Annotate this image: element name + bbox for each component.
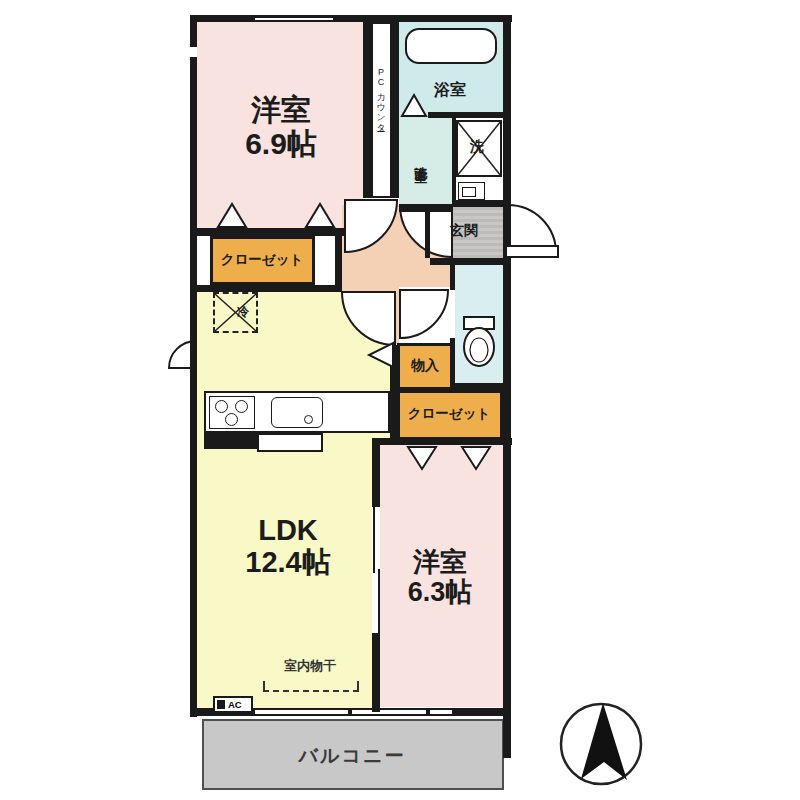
west1-size: 6.9帖 <box>245 127 317 161</box>
floor-plan: AC 洋室 6.9帖 LDK 12.4帖 洋室 6.3帖 浴室 洗面室 洗 <box>0 0 800 800</box>
ldk-name: LDK <box>245 514 330 546</box>
label-washer: 洗 <box>470 139 484 155</box>
kitchen-cabinet-dark <box>204 433 257 449</box>
wall-west1-bottom <box>190 228 345 236</box>
sink-drain <box>304 415 313 424</box>
wall-toilet-left-upper <box>450 265 455 290</box>
label-washroom: 洗面室 <box>413 157 428 160</box>
label-indoor-drying: 室内物干 <box>284 659 336 674</box>
label-pc-counter: PCカウンター <box>376 67 386 128</box>
wall-west2-left-lower <box>372 633 380 712</box>
bathtub-icon <box>405 28 497 64</box>
window-tick-2 <box>426 708 430 716</box>
ac-label: AC <box>228 699 242 710</box>
wall-entrance-top <box>452 200 503 207</box>
stove-burner <box>225 413 238 426</box>
west1-name: 洋室 <box>245 93 317 127</box>
shoe-cabinet-mark <box>462 187 476 197</box>
air-conditioner-box: AC <box>213 696 253 713</box>
stove-icon <box>209 396 255 429</box>
wall-washer-left <box>452 118 456 207</box>
room-washroom <box>399 118 452 212</box>
indoor-drying-bracket <box>263 681 359 692</box>
wall-ldk-right <box>390 345 397 445</box>
wall-hall-left <box>335 228 342 292</box>
label-balcony: バルコニー <box>299 745 406 766</box>
wall-entrance-bottom <box>430 258 503 265</box>
wall-bath-left <box>391 15 399 198</box>
sink-icon <box>271 397 323 428</box>
label-west1: 洋室 6.9帖 <box>245 93 317 160</box>
window-top <box>255 16 333 22</box>
wall-ldk-top <box>190 285 342 292</box>
stove-burner <box>215 400 228 413</box>
label-ldk: LDK 12.4帖 <box>245 514 330 579</box>
west2-size: 6.3帖 <box>408 577 473 607</box>
label-closet-right: クローゼット <box>408 406 491 421</box>
stove-burner <box>235 400 248 413</box>
window-left <box>190 45 197 59</box>
room-toilet <box>455 265 503 383</box>
ldk-size: 12.4帖 <box>245 546 330 578</box>
north-compass-circle <box>561 704 641 784</box>
wall-toilet-bottom <box>455 383 503 390</box>
west2-name: 洋室 <box>408 547 473 577</box>
wall-west2-top <box>372 438 512 445</box>
wall-left <box>190 15 197 717</box>
label-entrance: 玄関 <box>450 223 478 239</box>
window-balcony <box>255 708 452 716</box>
label-closet-left: クローゼット <box>221 252 304 267</box>
wall-top <box>190 15 512 22</box>
label-bath: 浴室 <box>434 81 466 99</box>
label-west2: 洋室 6.3帖 <box>408 547 473 607</box>
kitchen-cabinet-light <box>257 433 323 452</box>
label-refrigerator: 冷 <box>237 306 249 319</box>
wall-bottom-right <box>452 708 511 716</box>
refrigerator-icon <box>213 292 258 333</box>
label-storage: 物入 <box>411 358 439 374</box>
ac-mark <box>217 700 225 709</box>
wall-entrance-left <box>425 207 430 258</box>
wall-right <box>503 15 511 758</box>
wall-bath-bottom <box>428 112 503 118</box>
north-arrow-icon <box>581 703 627 780</box>
window-tick-1 <box>348 708 352 716</box>
door-arc-entrance <box>508 205 556 253</box>
entrance-door-leaf <box>506 246 558 257</box>
shoe-cabinet-icon <box>458 182 485 200</box>
wall-west1-right <box>363 15 372 198</box>
toilet-vestibule <box>399 287 452 345</box>
wall-west2-left-upper <box>372 445 380 507</box>
